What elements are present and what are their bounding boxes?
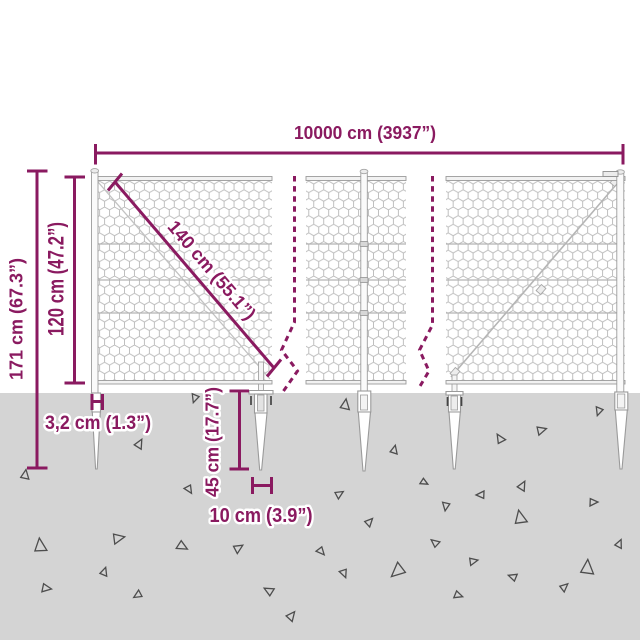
svg-text:3,2 cm (1.3”): 3,2 cm (1.3”) xyxy=(45,413,151,434)
svg-text:10 cm (3.9”): 10 cm (3.9”) xyxy=(210,504,313,527)
svg-text:45 cm (17.7”): 45 cm (17.7”) xyxy=(202,387,223,497)
svg-text:171 cm (67.3”): 171 cm (67.3”) xyxy=(7,258,27,380)
svg-text:120 cm (47.2”): 120 cm (47.2”) xyxy=(44,222,69,336)
svg-text:10000 cm (3937”): 10000 cm (3937”) xyxy=(294,123,436,143)
